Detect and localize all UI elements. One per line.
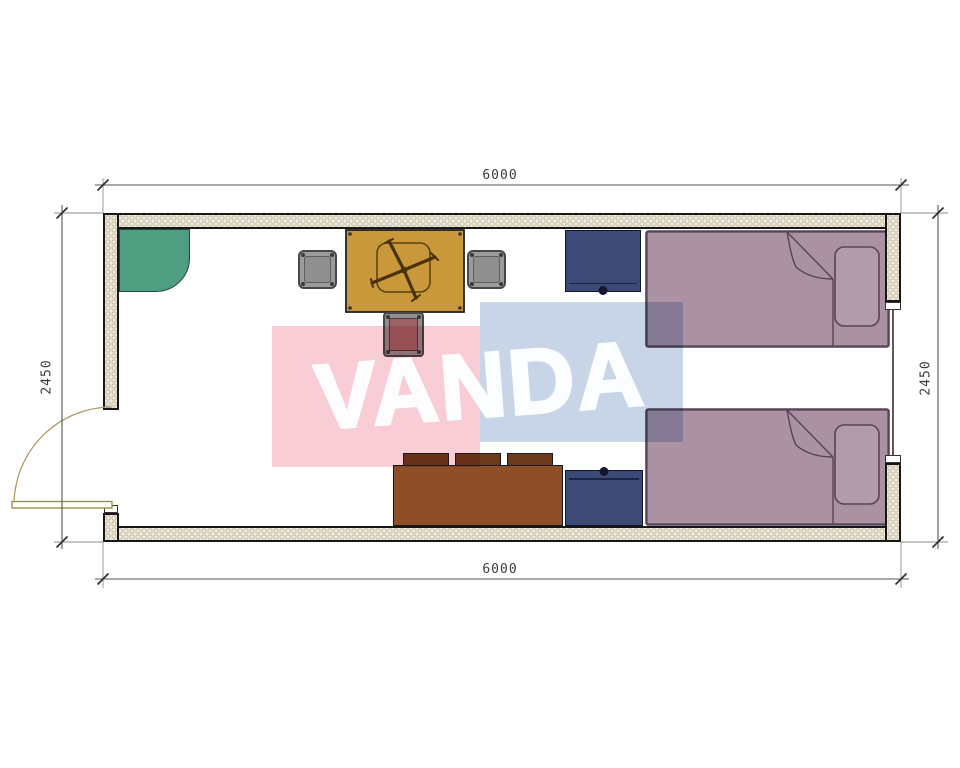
dimension-bottom-label: 6000 bbox=[482, 562, 517, 577]
floor-plan: VANDA bbox=[0, 0, 960, 768]
dimension-top-label: 6000 bbox=[482, 168, 517, 183]
wall-left-lower bbox=[103, 513, 119, 542]
door-leaf bbox=[12, 502, 112, 509]
pillow bbox=[835, 425, 879, 504]
dining-table bbox=[345, 229, 465, 313]
window-glass-line bbox=[892, 310, 894, 455]
wall-top bbox=[103, 213, 901, 229]
drawer-cabinet bbox=[393, 465, 563, 526]
wall-bottom bbox=[103, 526, 901, 542]
window-jamb-bottom bbox=[885, 455, 901, 463]
door-swing-arc bbox=[14, 407, 112, 505]
entry-door bbox=[0, 402, 130, 514]
nightstand-knob bbox=[599, 286, 608, 295]
wall-left-upper bbox=[103, 213, 119, 410]
window-jamb-top bbox=[885, 302, 901, 310]
chair-right bbox=[467, 250, 506, 289]
nightstand-top bbox=[565, 230, 641, 292]
chair-seat bbox=[304, 256, 331, 283]
wall-right-upper bbox=[885, 213, 901, 302]
chair-left bbox=[298, 250, 337, 289]
dimension-left-label: 2450 bbox=[40, 359, 55, 394]
chair-seat bbox=[473, 256, 500, 283]
pillow bbox=[835, 247, 879, 326]
nightstand-bottom bbox=[565, 470, 643, 526]
nightstand-knob bbox=[600, 467, 609, 476]
corner-shelf bbox=[119, 229, 190, 292]
cabinet-knob bbox=[507, 453, 553, 466]
dimension-right-label: 2450 bbox=[919, 360, 934, 395]
wall-right-lower bbox=[885, 463, 901, 542]
